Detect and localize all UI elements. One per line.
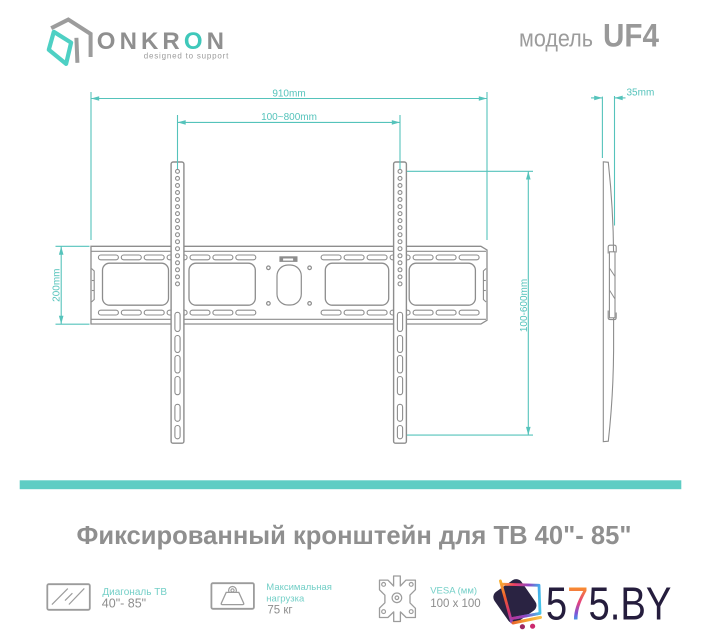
- svg-text:нагрузка: нагрузка: [266, 593, 305, 604]
- svg-text:UF4: UF4: [603, 18, 659, 54]
- svg-text:575.BY: 575.BY: [546, 578, 672, 630]
- svg-text:40"- 85": 40"- 85": [102, 596, 146, 610]
- svg-text:модель: модель: [519, 26, 593, 53]
- svg-text:200mm: 200mm: [52, 269, 63, 302]
- svg-text:100~800mm: 100~800mm: [261, 112, 317, 123]
- svg-text:100-600mm: 100-600mm: [519, 279, 530, 332]
- svg-text:910mm: 910mm: [272, 88, 305, 99]
- svg-text:Максимальная: Максимальная: [266, 582, 332, 593]
- svg-text:designed to support: designed to support: [144, 51, 229, 60]
- svg-text:VESA (мм): VESA (мм): [430, 586, 477, 597]
- svg-text:75 кг: 75 кг: [267, 604, 292, 616]
- svg-text:Фиксированный кронштейн для ТВ: Фиксированный кронштейн для ТВ 40"- 85": [77, 520, 632, 550]
- svg-text:35mm: 35mm: [627, 88, 655, 99]
- svg-text:100 x 100: 100 x 100: [430, 598, 481, 610]
